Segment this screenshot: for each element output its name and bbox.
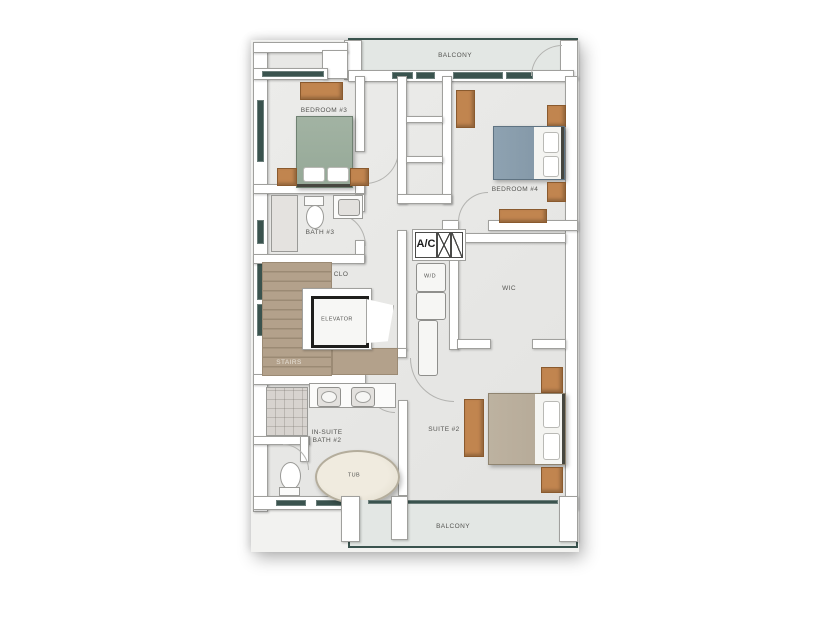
suite2-nightstand-bottom: [541, 467, 563, 493]
bath2-toilet-bowl: [280, 462, 301, 490]
pillow: [327, 167, 349, 182]
wall-mid-right: [442, 76, 452, 204]
bottom-balcony-pillar-left: [341, 496, 360, 542]
stairs-landing: [332, 348, 398, 375]
pillow: [543, 401, 560, 428]
clo-label: CLO: [334, 271, 349, 279]
bedroom4-nightstand-top: [547, 105, 566, 127]
bedroom4-label: BEDROOM #4: [492, 186, 539, 194]
bath2-toilet-tank: [279, 487, 300, 496]
bedroom3-label: BEDROOM #3: [301, 107, 348, 115]
wall-closet-bottom: [397, 194, 452, 204]
wall-wic-bottom-b: [532, 339, 566, 349]
top-window-2: [416, 72, 435, 79]
left-window-1: [257, 100, 264, 162]
wall-corridor-right: [449, 258, 459, 350]
wic-label: WIC: [502, 285, 516, 293]
suite2-label: SUITE #2: [428, 426, 459, 434]
bedroom3-bed: [296, 116, 353, 188]
bath2-sink-left-bowl: [321, 391, 337, 403]
wall-wic-bottom-a: [457, 339, 491, 349]
bedroom3-dresser: [300, 82, 343, 100]
bedroom4-dresser: [499, 209, 547, 223]
bedroom3-nightstand-left: [277, 168, 297, 186]
top-balcony-label: BALCONY: [438, 52, 472, 60]
bedroom3-top-window: [262, 71, 324, 77]
bath2-sink-right-bowl: [355, 391, 371, 403]
bedroom3-nightstand-right: [350, 168, 369, 186]
suite2-bench: [464, 399, 484, 457]
dryer-unit: [416, 292, 446, 320]
bottom-balcony-pillar-right: [559, 496, 578, 542]
bedroom4-wardrobe: [456, 90, 475, 128]
headboard: [562, 394, 565, 464]
wall-corridor-left: [397, 230, 407, 350]
bath3-shower: [271, 195, 298, 252]
elevator-label: ELEVATOR: [321, 317, 353, 324]
headboard: [561, 127, 564, 179]
pillow: [303, 167, 325, 182]
top-window-3: [453, 72, 503, 79]
top-window-4: [506, 72, 533, 79]
headboard: [297, 184, 352, 187]
closet-rail-2: [406, 156, 443, 163]
bath2-label: IN-SUITE BATH #2: [305, 429, 349, 445]
wall-mid-left: [397, 76, 407, 204]
pillow: [543, 132, 559, 153]
bath3-sink: [338, 199, 360, 216]
utility-cabinet: [418, 320, 438, 376]
bottom-balcony-wall-stub: [391, 496, 408, 540]
ac-x-cell: [437, 232, 451, 258]
pillow: [543, 433, 560, 460]
bottom-balcony-label: BALCONY: [436, 523, 470, 531]
closet-rail-1: [406, 116, 443, 123]
suite2-nightstand-top: [541, 367, 563, 393]
pillow: [543, 156, 559, 177]
tub-label: TUB: [348, 473, 360, 480]
bath3-label: BATH #3: [306, 229, 335, 237]
exterior-wall-right: [565, 76, 578, 510]
floor-plan-canvas: BALCONY BEDRO: [0, 0, 840, 630]
wall-bath2-suite2: [398, 400, 408, 496]
wall-wic-top: [449, 233, 566, 243]
bath2-window-1: [276, 500, 306, 506]
stairs-label: STAIRS: [276, 359, 301, 367]
bedroom4-bed: [493, 126, 565, 180]
left-window-2: [257, 220, 264, 244]
ac-diag-cell: [451, 232, 463, 258]
ac-label: A/C: [417, 238, 436, 252]
bath2-shower: [266, 387, 308, 436]
suite2-bed: [488, 393, 566, 465]
bedroom4-nightstand-bottom: [547, 182, 566, 202]
wall-hall-bedroom3-a: [355, 76, 365, 152]
wd-label: W/D: [424, 274, 436, 281]
bath3-toilet-bowl: [306, 205, 324, 229]
